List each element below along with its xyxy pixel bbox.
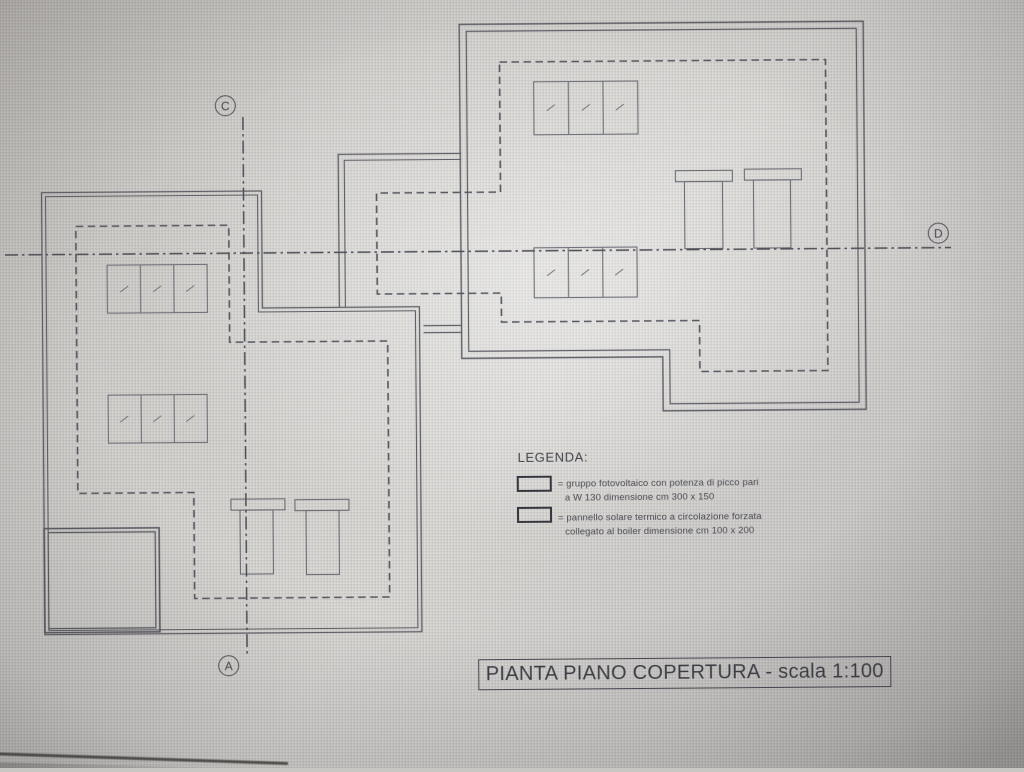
legend-heading: LEGENDA: (518, 449, 589, 465)
legend-line: = gruppo fotovoltaico con potenza di pic… (558, 476, 759, 491)
legend-item-photovoltaic: = gruppo fotovoltaico con potenza di pic… (558, 476, 759, 505)
drawing-sheet: C A D LEGENDA: = gruppo fotovoltaico con… (0, 0, 1024, 772)
drawing-title-box: PIANTA PIANO COPERTURA - scala 1:100 (478, 656, 891, 690)
section-marker-a-label: A (225, 659, 233, 673)
pv-array-dashed-area-left (76, 224, 390, 599)
section-marker-c: C (215, 95, 236, 116)
solar-thermal-panels-right (675, 169, 802, 249)
section-line-horizontal-d (5, 248, 951, 255)
photovoltaic-symbol-box (517, 476, 552, 492)
solar-thermal-panels-left (231, 498, 350, 575)
pv-panel-group-left-bottom (108, 394, 207, 443)
solar-thermal-symbol-box (517, 507, 552, 523)
annex-outline (44, 528, 160, 633)
section-marker-c-label: C (221, 99, 230, 113)
legend-line: = pannello solare termico a circolazione… (558, 510, 762, 525)
pv-panel-group-right-top (534, 81, 638, 135)
left-building-outline (41, 190, 421, 635)
legend-item-solar-thermal: = pannello solare termico a circolazione… (558, 510, 762, 539)
right-building-outline (459, 21, 866, 412)
section-marker-d: D (928, 223, 949, 244)
pv-panel-group-right-bottom (534, 247, 637, 298)
photographed-floor-plan: C A D LEGENDA: = gruppo fotovoltaico con… (0, 0, 1024, 768)
section-marker-d-label: D (934, 226, 943, 240)
legend-line: a W 130 dimensione cm 300 x 150 (565, 490, 759, 505)
pv-panel-group-left-top (107, 264, 207, 313)
legend-line: collegato al boiler dimensione cm 100 x … (565, 524, 762, 539)
section-marker-a: A (218, 655, 239, 676)
pv-array-dashed-area-right (375, 60, 827, 375)
drawing-title: PIANTA PIANO COPERTURA - scala 1:100 (486, 660, 884, 686)
section-line-vertical-ca (243, 117, 247, 654)
